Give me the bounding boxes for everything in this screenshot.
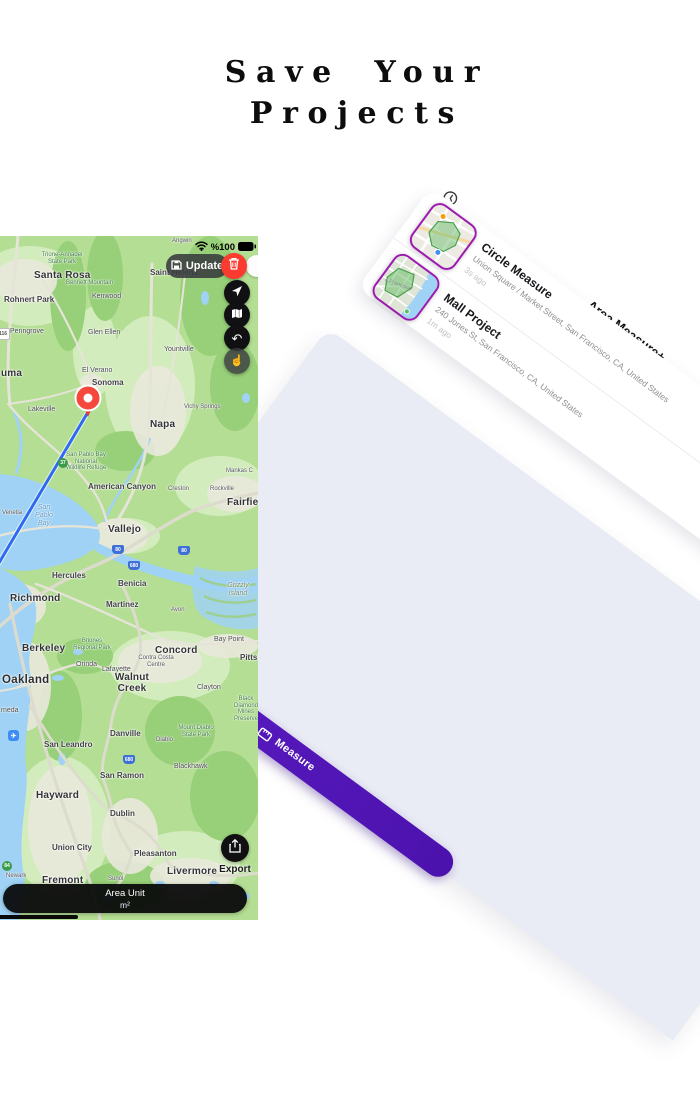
map-label: Union City [52,844,92,853]
update-label: Update [186,260,223,272]
map-label: Benicia [118,580,146,589]
map-label: Bay Point [214,636,244,644]
map-label: Vichy Springs [184,404,221,411]
map-layers-icon [231,306,243,324]
map-label: American Canyon [88,483,156,492]
trash-icon [228,257,240,275]
area-unit-label: Area Unit [3,888,247,899]
map-label: Walnut Creek [115,672,149,694]
route-shield: 80 [112,545,124,554]
export-button[interactable] [221,834,249,862]
map-label: Vallejo [108,524,141,535]
map-label: Lakeville [28,406,55,414]
map-label: Oakland [2,674,49,687]
page-title: Save Your Projects [0,52,700,135]
tap-tool-button[interactable]: ☝ [224,348,250,374]
map-label: Richmond [10,593,61,604]
map-label: Mankas C [226,468,253,475]
map-label: Glen Ellen [88,329,120,337]
map-screenshot[interactable]: Santa RosaTrione-Annadel State ParkBenne… [0,236,258,920]
map-label: Contra Costa Centre [138,655,173,668]
home-indicator[interactable] [0,915,78,919]
map-label: meda [1,707,19,715]
map-label: Black Diamond Mines Preserve [234,696,258,723]
route-shield: 80 [178,546,190,555]
map-label: Trione-Annadel State Park [42,252,83,265]
route-shield: 680 [128,561,140,570]
undo-icon: ↶ [232,332,243,345]
map-label: Pittsburg [240,654,258,663]
map-label: Hercules [52,572,86,581]
map-label: Creston [168,486,189,493]
map-label: Grizzly Island [227,582,248,598]
save-icon [171,260,182,273]
map-label: Blackhawk [174,763,207,771]
map-label: Kenwood [92,293,121,301]
map-label: Sunol [108,876,123,883]
location-arrow-icon [231,284,243,302]
route-shield: 680 [123,755,135,764]
map-label: Penngrove [10,328,44,336]
delete-button[interactable] [221,253,247,279]
map-label: San Pablo Bay [35,504,53,527]
map-label: Fairfield [227,497,258,508]
map-label: Martinez [106,601,138,610]
area-unit-pill[interactable]: Area Unit m² [3,884,247,913]
map-label: Hayward [36,790,79,801]
update-button[interactable]: Update [166,254,228,278]
page-title-line2: Projects [14,93,700,134]
map-label: Rockville [210,486,234,493]
map-label: Dublin [110,810,135,819]
map-label: Napa [150,419,175,430]
route-shield: 116 [0,328,10,340]
map-label: Pleasanton [134,850,177,859]
map-label: Orinda [76,661,97,669]
status-bar: %100 [186,240,256,254]
map-label: San Ramon [100,772,144,781]
battery-percent: %100 [211,242,235,253]
map-label: San Leandro [44,741,92,750]
map-label: Avon [171,607,185,614]
route-shield: 84 [2,861,12,871]
route-shield: ✈ [8,730,19,741]
route-shield: 37 [58,458,68,468]
map-label: Sonoma [92,379,124,388]
map-label: Mount Diablo State Park [178,725,213,738]
map-label: Yountville [164,346,194,354]
map-label: Venetia [2,510,22,517]
map-label: Diablo [156,737,173,744]
battery-full-icon [238,238,256,256]
share-export-icon [229,839,241,858]
tap-gesture-icon: ☝ [230,356,244,367]
map-label: Newark [6,873,26,880]
export-label: Export [208,864,258,875]
map-label: Clayton [197,684,221,692]
map-label: El Verano [82,367,112,375]
map-label: Briones Regional Park [73,638,111,651]
area-unit-value: m² [3,900,247,910]
page-title-line1: Save Your [14,52,700,93]
map-label: San Pablo Bay National Wildlife Refuge [66,452,106,472]
map-label: Danville [110,730,141,739]
map-label: Rohnert Park [4,296,54,305]
map-label: Bennett Mountain [66,280,113,287]
map-label: Berkeley [22,643,65,654]
map-label: uma [1,368,22,379]
